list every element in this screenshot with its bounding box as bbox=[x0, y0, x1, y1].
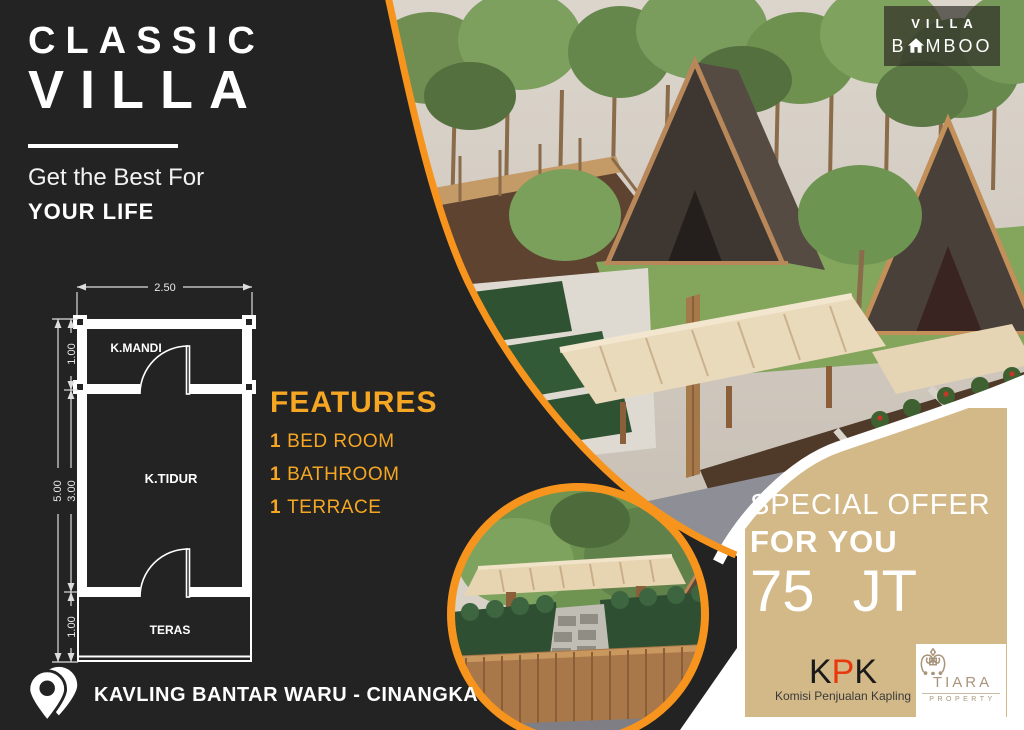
title-block: CLASSIC VILLA Get the Best For YOUR LIFE bbox=[28, 20, 265, 225]
location-pin-icon bbox=[22, 664, 84, 726]
location-text: KAVLING BANTAR WARU - CINANGKA bbox=[94, 684, 478, 707]
kpk-k2: K bbox=[854, 653, 877, 691]
kpk-k1: K bbox=[809, 653, 832, 691]
features-heading: FEATURES bbox=[270, 386, 437, 420]
feature-qty: 1 bbox=[270, 497, 281, 518]
title-underline bbox=[28, 144, 178, 148]
kpk-subtitle: Komisi Penjualan Kapling bbox=[750, 689, 936, 703]
room-label-terrace: TERAS bbox=[150, 623, 191, 637]
tiara-logo: TIARA PROPERTY bbox=[916, 644, 1006, 718]
floor-plan: 2.50 5.00 1.00 3.00 1.00 K.MANDI K.TIDUR… bbox=[20, 270, 270, 675]
dim-width: 2.50 bbox=[154, 282, 175, 294]
dim-bedroom: 3.00 bbox=[66, 480, 78, 501]
feature-item: 1TERRACE bbox=[270, 497, 437, 519]
brand-line2: B MBOO bbox=[884, 36, 1000, 57]
title-line2: VILLA bbox=[28, 62, 265, 118]
kpk-p: P bbox=[832, 653, 855, 691]
house-icon bbox=[908, 38, 924, 53]
tiara-name: TIARA bbox=[916, 675, 1006, 691]
title-line1: CLASSIC bbox=[28, 20, 265, 62]
brand-line1: VILLA bbox=[884, 16, 1000, 31]
offer-line2: FOR YOU bbox=[750, 523, 1006, 561]
offer-line1: SPECIAL OFFER bbox=[750, 488, 1006, 523]
brand-line2-suffix: MBOO bbox=[926, 36, 993, 57]
feature-label: BATHROOM bbox=[287, 464, 399, 485]
dim-total-height: 5.00 bbox=[52, 480, 64, 501]
location-bar: KAVLING BANTAR WARU - CINANGKA bbox=[22, 664, 478, 726]
feature-qty: 1 bbox=[270, 464, 281, 485]
kpk-logo: KPK Komisi Penjualan Kapling bbox=[750, 655, 936, 703]
offer-block: SPECIAL OFFER FOR YOU 75 JT bbox=[750, 488, 1006, 623]
brand-line2-prefix: B bbox=[891, 36, 906, 57]
tiara-crown-icon bbox=[916, 647, 950, 675]
kpk-letters: KPK bbox=[750, 655, 936, 689]
room-label-bedroom: K.TIDUR bbox=[145, 471, 198, 486]
feature-label: BED ROOM bbox=[287, 431, 394, 452]
tagline-line1: Get the Best For bbox=[28, 164, 265, 192]
flyer-canvas: CLASSIC VILLA Get the Best For YOUR LIFE bbox=[0, 0, 1024, 730]
tagline-line2: YOUR LIFE bbox=[28, 199, 265, 225]
feature-qty: 1 bbox=[270, 431, 281, 452]
feature-item: 1BED ROOM bbox=[270, 431, 437, 453]
tiara-subtitle: PROPERTY bbox=[922, 693, 1000, 703]
dim-bathroom: 1.00 bbox=[66, 343, 78, 364]
brand-badge: VILLA B MBOO bbox=[884, 6, 1000, 66]
feature-item: 1BATHROOM bbox=[270, 464, 437, 486]
offer-price: 75 JT bbox=[750, 561, 1006, 623]
features-block: FEATURES 1BED ROOM 1BATHROOM 1TERRACE bbox=[270, 386, 437, 519]
room-label-bathroom: K.MANDI bbox=[110, 341, 161, 355]
feature-label: TERRACE bbox=[287, 497, 381, 518]
dim-terrace: 1.00 bbox=[66, 616, 78, 637]
